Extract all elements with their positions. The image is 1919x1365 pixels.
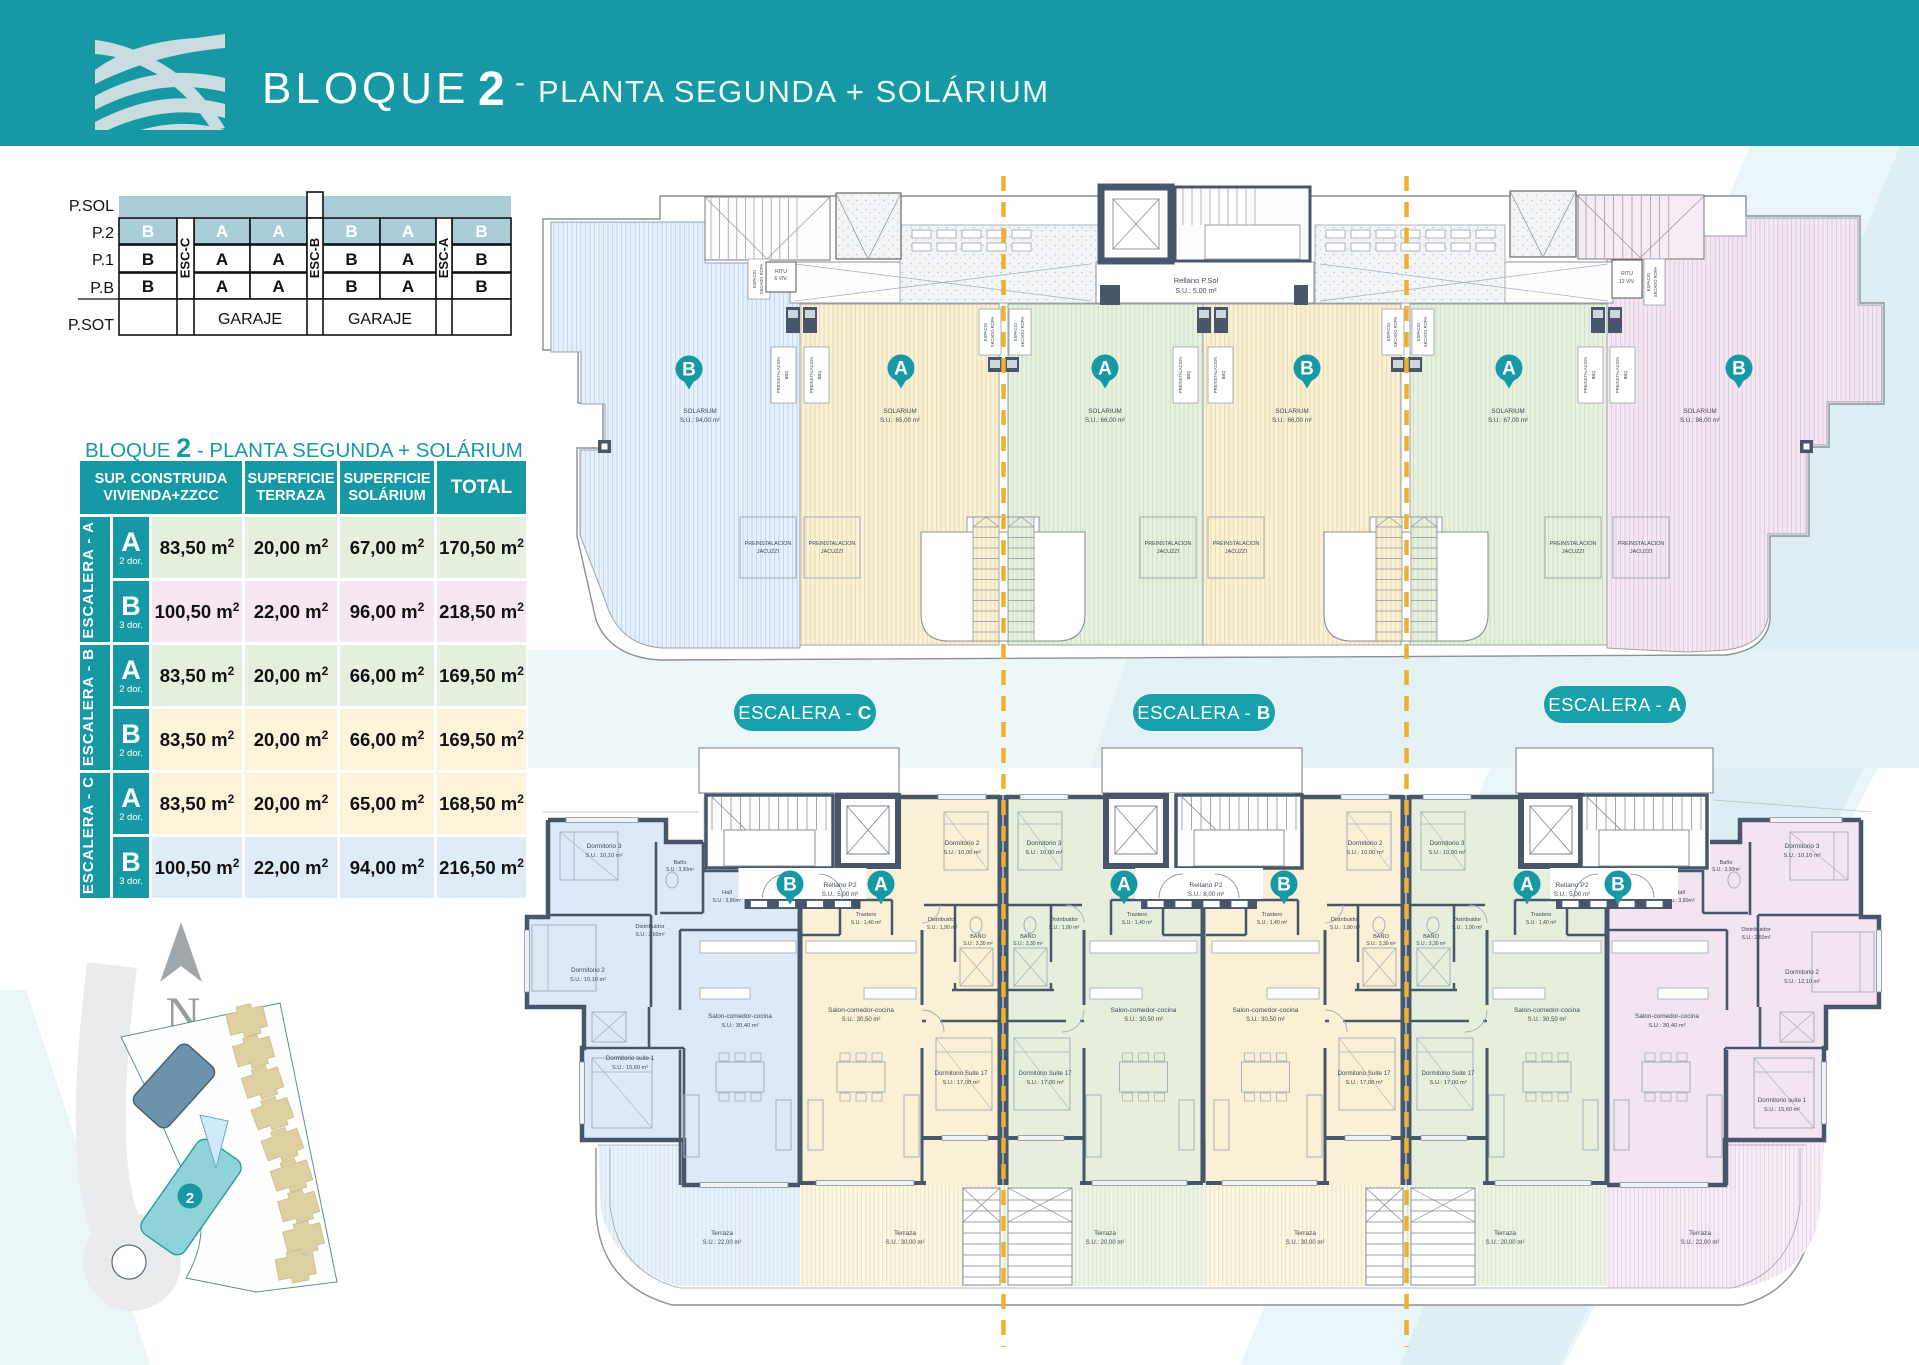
svg-text:Distribuidor: Distribuidor [1453,917,1481,923]
svg-text:2: 2 [478,63,505,116]
svg-text:S.U.: 30,50 m²: S.U.: 30,50 m² [1124,1017,1163,1023]
svg-text:Salon-comedor-cocina: Salon-comedor-cocina [1514,1007,1580,1014]
svg-text:B: B [142,250,154,269]
svg-text:Rellano P.Sol: Rellano P.Sol [1174,276,1219,285]
svg-text:S.U.: 3,30 m²: S.U.: 3,30 m² [963,941,993,947]
svg-text:A: A [402,250,414,269]
svg-text:A: A [402,222,414,241]
svg-text:Dormitorio suite 1: Dormitorio suite 1 [606,1055,655,1062]
svg-text:BBQ: BBQ [817,370,822,380]
svg-text:BAÑO: BAÑO [1020,933,1037,940]
svg-text:S.U.: 30,50 m²: S.U.: 30,50 m² [842,1017,881,1023]
svg-text:SOLARIUM: SOLARIUM [1683,408,1716,415]
svg-text:SECADO ROPA: SECADO ROPA [759,264,764,295]
svg-text:Rellano P2: Rellano P2 [1189,882,1222,889]
svg-text:Salon-comedor-cocina: Salon-comedor-cocina [1635,1013,1699,1020]
svg-text:PREINSTALACION: PREINSTALACION [1145,541,1192,547]
svg-text:PREINSTALACION: PREINSTALACION [809,357,814,393]
svg-text:A: A [1098,359,1112,380]
svg-text:ESPACIO: ESPACIO [752,269,757,288]
svg-text:PREINSTALACION: PREINSTALACION [745,541,792,547]
svg-text:S.U.: 10,10 m²: S.U.: 10,10 m² [570,977,606,983]
svg-text:PREINSTALACION: PREINSTALACION [809,541,856,547]
svg-text:Dormitorio 3: Dormitorio 3 [1027,840,1062,847]
svg-text:S.U.: 22,00 m²: S.U.: 22,00 m² [703,1240,742,1246]
svg-text:S.U.: 30,00 m²: S.U.: 30,00 m² [886,1240,925,1246]
svg-text:B: B [1300,359,1314,380]
svg-text:12 VIV.: 12 VIV. [1619,279,1635,285]
svg-text:Dormitorio Suite 17: Dormitorio Suite 17 [1019,1070,1073,1077]
svg-text:B: B [142,277,154,296]
svg-text:BAÑO: BAÑO [970,933,987,940]
svg-text:ESPACIO: ESPACIO [1013,322,1018,341]
svg-text:JACUZZI: JACUZZI [757,549,779,555]
svg-text:S.U.: 1,90 m²: S.U.: 1,90 m² [1049,925,1080,931]
svg-text:A: A [216,277,228,296]
svg-text:PREINSTALACION: PREINSTALACION [1583,357,1588,393]
svg-text:Dormitorio 2: Dormitorio 2 [571,967,605,974]
svg-text:S.U.: 10,10 m²: S.U.: 10,10 m² [585,853,622,859]
svg-text:S.U.: 3,80m²: S.U.: 3,80m² [712,898,741,904]
svg-text:P.SOL: P.SOL [69,198,114,215]
svg-text:B: B [1611,875,1625,896]
svg-text:B: B [475,222,487,241]
svg-text:Salon-comedor-cocina: Salon-comedor-cocina [1233,1007,1299,1014]
svg-text:S.U.: 12,10 m²: S.U.: 12,10 m² [1784,979,1820,985]
svg-text:Rellano P2: Rellano P2 [1555,882,1588,889]
svg-text:BAÑO: BAÑO [1373,933,1390,940]
svg-text:ESCALERA - C: ESCALERA - C [738,702,872,723]
svg-text:S.U.: 67,00 m²: S.U.: 67,00 m² [1488,417,1528,424]
svg-text:PREINSTALACION: PREINSTALACION [1213,357,1218,393]
svg-text:B: B [682,360,696,381]
svg-text:JACUZZI: JACUZZI [1562,549,1584,555]
svg-text:Dormitorio Suite 17: Dormitorio Suite 17 [1338,1070,1392,1077]
svg-text:Dormitorio 2: Dormitorio 2 [1785,969,1819,976]
svg-text:S.U.: 66,00 m²: S.U.: 66,00 m² [1272,417,1312,424]
svg-text:S.U.: 30,50 m²: S.U.: 30,50 m² [1528,1017,1567,1023]
svg-text:RITU: RITU [1621,271,1633,277]
svg-text:Dormitorio Suite 17: Dormitorio Suite 17 [935,1070,989,1077]
svg-text:S.U.: 5,00 m²: S.U.: 5,00 m² [1175,288,1217,295]
svg-text:S.U.: 1,90 m²: S.U.: 1,90 m² [1452,925,1483,931]
svg-text:Dormitorio 3: Dormitorio 3 [587,843,622,850]
svg-text:B: B [783,875,797,896]
svg-text:A: A [216,222,228,241]
svg-text:P.B: P.B [90,280,114,297]
svg-text:BLOQUE: BLOQUE [262,64,469,113]
svg-text:Trastero: Trastero [856,912,877,918]
svg-text:S.U.: 65,00 m²: S.U.: 65,00 m² [880,417,920,424]
svg-text:S.U.: 10,00 m²: S.U.: 10,00 m² [1346,850,1383,856]
svg-text:BBQ: BBQ [1591,370,1596,380]
svg-text:A: A [874,875,888,896]
svg-text:JACUZZI: JACUZZI [1630,549,1652,555]
svg-text:ESPACIO: ESPACIO [1416,322,1421,341]
svg-text:Distribuidor: Distribuidor [635,924,664,930]
svg-text:S.U.: 3,30 m²: S.U.: 3,30 m² [1013,941,1043,947]
svg-text:S.U.: 30,40 m²: S.U.: 30,40 m² [721,1023,758,1029]
svg-text:PREINSTALACION: PREINSTALACION [1615,357,1620,393]
svg-text:2: 2 [186,1190,194,1207]
svg-text:A: A [1520,875,1534,896]
svg-text:Rellano P2: Rellano P2 [823,882,856,889]
svg-text:S.U.: 10,00 m²: S.U.: 10,00 m² [1025,850,1062,856]
svg-text:P.1: P.1 [92,252,114,269]
svg-text:SECADO ROPA: SECADO ROPA [1020,317,1025,348]
svg-text:B: B [1732,359,1746,380]
svg-text:S.U.: 1,40 m²: S.U.: 1,40 m² [1257,920,1288,926]
svg-text:Dormitorio Suite 17: Dormitorio Suite 17 [1422,1070,1476,1077]
svg-text:Hall: Hall [722,890,732,896]
svg-text:B: B [345,222,357,241]
svg-text:ESPACIO: ESPACIO [983,322,988,341]
svg-text:S.U.: 3,30m²: S.U.: 3,30m² [666,867,694,873]
svg-text:Dormitorio 3: Dormitorio 3 [1785,843,1820,850]
svg-text:GARAJE: GARAJE [348,311,412,328]
svg-text:SECADO ROPA: SECADO ROPA [1423,317,1428,348]
svg-text:B: B [475,250,487,269]
svg-text:S.U.: 5,00 m²: S.U.: 5,00 m² [822,891,858,898]
svg-text:PREINSTALACION: PREINSTALACION [1213,541,1260,547]
svg-text:B: B [345,250,357,269]
svg-text:S.U.: 22,00 m²: S.U.: 22,00 m² [1681,1240,1720,1246]
svg-text:Terraza: Terraza [1689,1230,1711,1237]
svg-text:PLANTA SEGUNDA + SOLÁRIUM: PLANTA SEGUNDA + SOLÁRIUM [538,74,1050,109]
svg-text:A: A [272,250,284,269]
svg-text:S.U.: 3,30 m²: S.U.: 3,30 m² [1366,941,1396,947]
svg-text:Distribuidor: Distribuidor [1741,927,1770,933]
svg-text:ESC-A: ESC-A [436,237,451,278]
svg-text:Distribuidor: Distribuidor [928,917,956,923]
svg-text:BBQ: BBQ [1186,370,1191,380]
svg-text:BAÑO: BAÑO [1423,933,1440,940]
svg-text:B: B [475,277,487,296]
svg-text:P.2: P.2 [92,225,114,242]
svg-text:RITU: RITU [775,269,787,275]
svg-text:Dormitorio 3: Dormitorio 3 [1430,840,1465,847]
svg-text:A: A [272,222,284,241]
svg-text:SOLARIUM: SOLARIUM [1275,408,1308,415]
svg-text:Terraza: Terraza [1494,1230,1516,1237]
svg-text:S.U.: 8,00 m²: S.U.: 8,00 m² [1188,891,1224,898]
svg-text:S.U.: 10,00 m²: S.U.: 10,00 m² [1428,850,1465,856]
svg-text:ESPACIO: ESPACIO [1646,272,1651,291]
svg-text:S.U.: 17,00 m²: S.U.: 17,00 m² [1429,1080,1466,1086]
svg-text:SOLARIUM: SOLARIUM [883,408,916,415]
svg-text:S.U.: 15,60 m²: S.U.: 15,60 m² [1764,1107,1800,1113]
svg-text:S.U.: 94,00 m²: S.U.: 94,00 m² [680,417,720,424]
svg-text:S.U.: 10,10 m²: S.U.: 10,10 m² [1783,853,1820,859]
svg-text:SOLARIUM: SOLARIUM [1088,408,1121,415]
svg-text:ESC-C: ESC-C [178,237,193,278]
svg-text:S.U.: 15,60 m²: S.U.: 15,60 m² [612,1065,648,1071]
svg-text:S.U.: 17,00 m²: S.U.: 17,00 m² [1345,1080,1382,1086]
svg-text:A: A [1117,875,1131,896]
svg-text:S.U.: 2,60m²: S.U.: 2,60m² [1741,935,1770,941]
svg-text:S.U.: 2,60m²: S.U.: 2,60m² [635,932,664,938]
svg-text:Baño: Baño [1719,860,1732,866]
svg-text:Dormitorio 2: Dormitorio 2 [1348,840,1383,847]
svg-text:B: B [1277,875,1291,896]
svg-text:Distribuidor: Distribuidor [1331,917,1359,923]
svg-text:Salon-comedor-cocina: Salon-comedor-cocina [1111,1007,1177,1014]
svg-text:BBQ: BBQ [784,370,789,380]
svg-text:BBQ: BBQ [1623,370,1628,380]
svg-text:B: B [142,222,154,241]
svg-text:SOLARIUM: SOLARIUM [683,408,716,415]
svg-text:Trastero: Trastero [1127,912,1148,918]
svg-text:S.U.: 1,90 m²: S.U.: 1,90 m² [1330,925,1361,931]
svg-text:S.U.: 20,00 m²: S.U.: 20,00 m² [1486,1240,1525,1246]
svg-text:-: - [515,66,525,99]
svg-text:ESCALERA - B: ESCALERA - B [1137,702,1271,723]
svg-text:S.U.: 66,00 m²: S.U.: 66,00 m² [1085,417,1125,424]
svg-text:A: A [272,277,284,296]
svg-text:A: A [1502,359,1516,380]
svg-text:ESCALERA - A: ESCALERA - A [1548,694,1682,715]
svg-text:Terraza: Terraza [1094,1230,1116,1237]
svg-text:Terraza: Terraza [711,1230,733,1237]
svg-text:A: A [216,250,228,269]
svg-text:S.U.: 96,00 m²: S.U.: 96,00 m² [1680,417,1720,424]
svg-text:GARAJE: GARAJE [218,311,282,328]
svg-text:S.U.: 3,30m²: S.U.: 3,30m² [1712,867,1740,873]
svg-text:B: B [345,277,357,296]
svg-text:S.U.: 30,50 m²: S.U.: 30,50 m² [1246,1017,1285,1023]
svg-text:6 VIV.: 6 VIV. [774,276,787,282]
svg-text:S.U.: 30,40 m²: S.U.: 30,40 m² [1648,1023,1685,1029]
svg-text:Baño: Baño [673,860,686,866]
svg-text:S.U.: 1,90 m²: S.U.: 1,90 m² [927,925,958,931]
svg-text:BBQ: BBQ [1221,370,1226,380]
svg-text:JACUZZI: JACUZZI [1157,549,1179,555]
svg-text:ESPACIO: ESPACIO [1386,322,1391,341]
svg-text:Salon-comedor-cocina: Salon-comedor-cocina [708,1013,772,1020]
svg-text:Dormitorio 2: Dormitorio 2 [945,840,980,847]
svg-text:PREINSTALACION: PREINSTALACION [1550,541,1597,547]
svg-text:SOLARIUM: SOLARIUM [1491,408,1524,415]
svg-text:P.SOT: P.SOT [68,317,114,334]
svg-text:PREINSTALACION: PREINSTALACION [776,357,781,393]
svg-text:S.U.: 17,00 m²: S.U.: 17,00 m² [942,1080,979,1086]
svg-text:JACUZZI: JACUZZI [1225,549,1247,555]
svg-text:PREINSTALACION: PREINSTALACION [1618,541,1665,547]
svg-text:S.U.: 30,00 m²: S.U.: 30,00 m² [1286,1240,1325,1246]
svg-text:ESC-B: ESC-B [307,238,322,278]
svg-text:A: A [894,359,908,380]
svg-text:A: A [402,277,414,296]
svg-text:Distribuidor: Distribuidor [1050,917,1078,923]
svg-text:S.U.: 1,40 m²: S.U.: 1,40 m² [1526,920,1557,926]
svg-text:Dormitorio suite 1: Dormitorio suite 1 [1758,1097,1807,1104]
svg-text:JACUZZI: JACUZZI [821,549,843,555]
svg-text:Terraza: Terraza [894,1230,916,1237]
svg-text:SECADO ROPA: SECADO ROPA [990,317,995,348]
svg-text:S.U.: 3,30 m²: S.U.: 3,30 m² [1416,941,1446,947]
svg-text:Terraza: Terraza [1294,1230,1316,1237]
svg-text:Trastero: Trastero [1262,912,1283,918]
svg-text:Trastero: Trastero [1531,912,1552,918]
svg-text:S.U.: 1,40 m²: S.U.: 1,40 m² [851,920,882,926]
svg-text:S.U.: 17,00 m²: S.U.: 17,00 m² [1026,1080,1063,1086]
svg-text:S.U.: 20,00 m²: S.U.: 20,00 m² [1086,1240,1125,1246]
svg-text:S.U.: 10,00 m²: S.U.: 10,00 m² [943,850,980,856]
svg-text:Salon-comedor-cocina: Salon-comedor-cocina [828,1007,894,1014]
svg-text:SECADO ROPA: SECADO ROPA [1653,267,1658,298]
svg-text:PREINSTALACION: PREINSTALACION [1178,357,1183,393]
svg-text:S.U.: 5,00 m²: S.U.: 5,00 m² [1554,891,1590,898]
svg-text:SECADO ROPA: SECADO ROPA [1393,317,1398,348]
svg-text:S.U.: 1,40 m²: S.U.: 1,40 m² [1122,920,1153,926]
